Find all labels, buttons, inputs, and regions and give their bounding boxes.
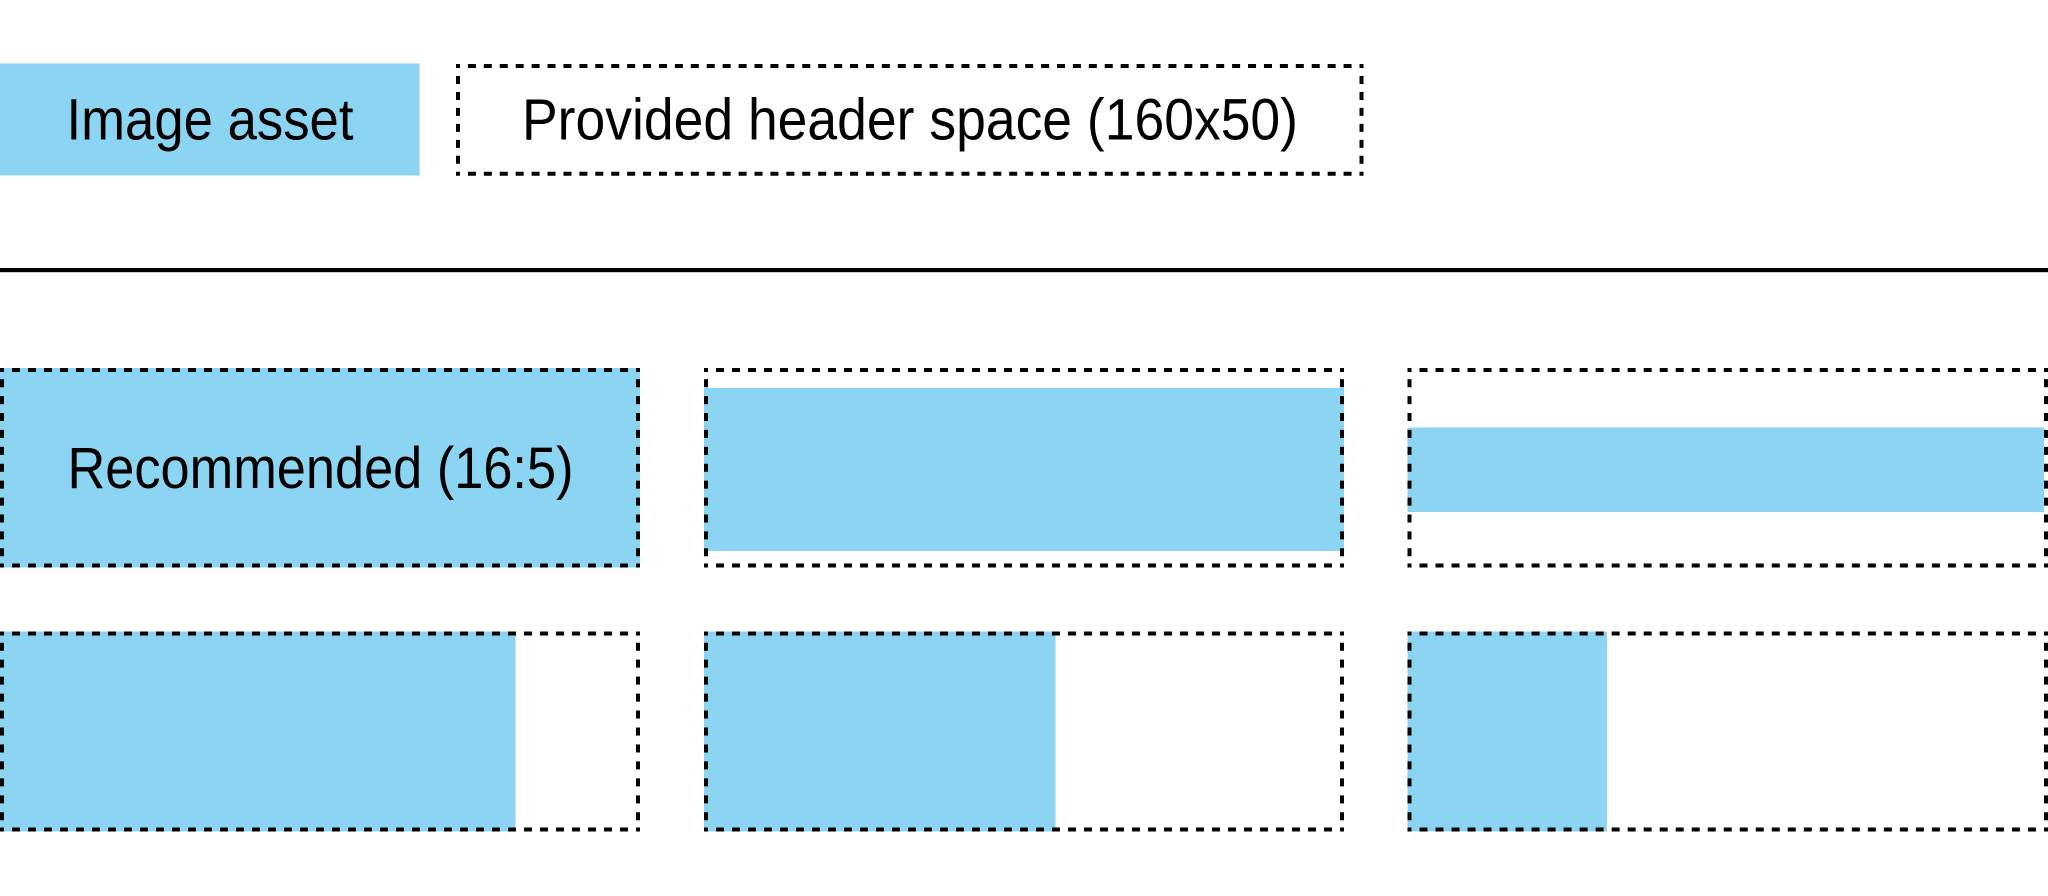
svg-text:Provided header space (160x50): Provided header space (160x50) [522, 88, 1298, 153]
svg-text:Recommended (16:5): Recommended (16:5) [68, 436, 574, 501]
svg-text:Image asset: Image asset [67, 88, 354, 153]
